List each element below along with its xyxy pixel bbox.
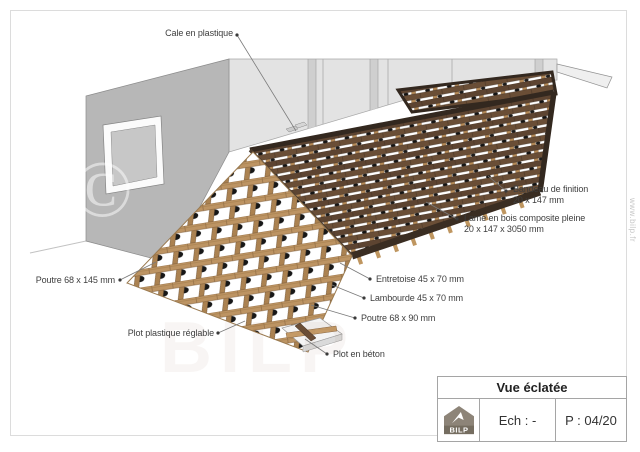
house-logo-icon: BILP [443,405,475,435]
label-plot-plastique: Plot plastique réglable [128,328,214,339]
scale-label: Ech : - [480,399,556,441]
label-cale: Cale en plastique [165,28,233,39]
label-bandeau: Bandeau de finition 20 x 147 mm [513,184,588,205]
label-entretoise: Entretoise 45 x 70 mm [376,274,464,285]
right-wall-wing [557,64,612,88]
label-plot-beton: Plot en béton [333,349,385,360]
drawing-sheet: © [0,0,640,452]
page-label: P : 04/20 [556,399,626,441]
label-lame: Lame en bois composite pleine 20 x 147 x… [464,213,585,234]
title-block: Vue éclatée BILP Ech : - P : 04/20 [437,376,627,442]
bilp-logo: BILP [438,399,480,441]
label-poutre90: Poutre 68 x 90 mm [361,313,435,324]
brand-watermark: BILP [160,308,356,388]
copyright-watermark: © [72,146,133,234]
sheet-title: Vue éclatée [438,377,626,399]
label-poutre145: Poutre 68 x 145 mm [36,275,115,286]
title-block-row: BILP Ech : - P : 04/20 [438,399,626,441]
leader-lambourde [332,285,364,298]
site-watermark: www.bilp.fr [628,197,637,242]
svg-text:BILP: BILP [449,426,468,435]
label-lambourde: Lambourde 45 x 70 mm [370,293,463,304]
